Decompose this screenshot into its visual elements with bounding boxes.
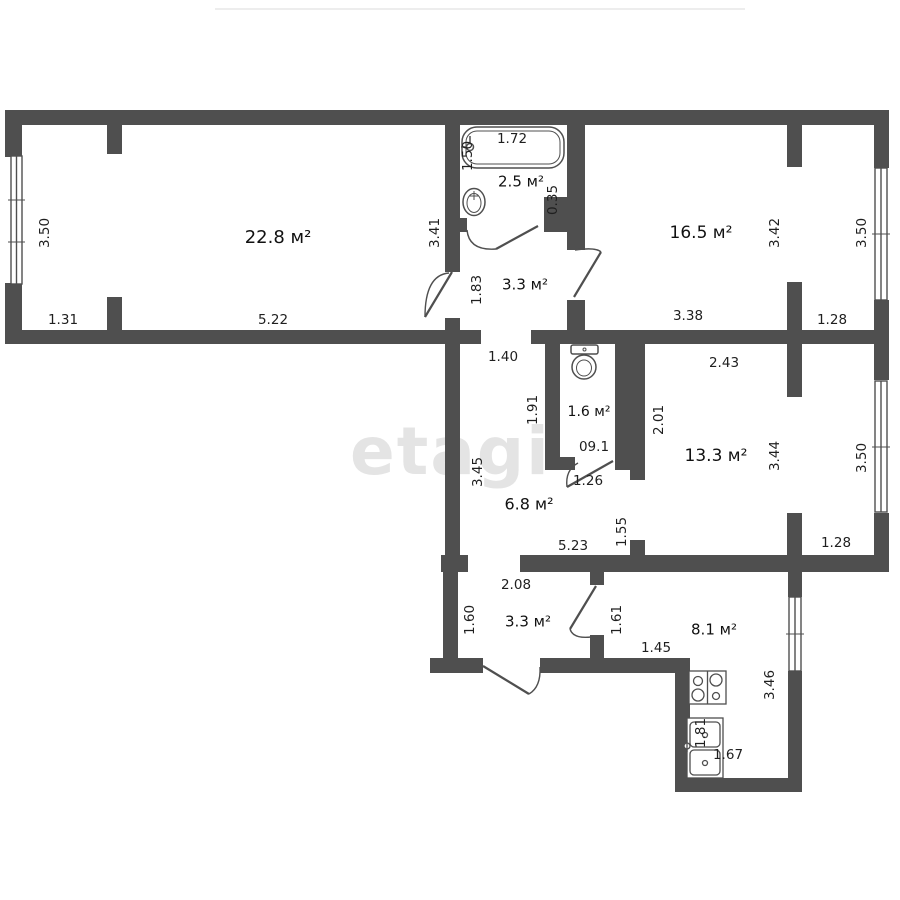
dimension-label: 1.81	[693, 718, 709, 748]
scan-artifact-line	[215, 8, 745, 10]
dimension-label: 1.40	[488, 349, 518, 365]
stove-icon	[710, 674, 722, 686]
wall	[590, 572, 604, 585]
dimension-label: 1.91	[525, 395, 541, 425]
floor-plan-page: etagi	[0, 0, 900, 900]
wall	[5, 330, 481, 344]
wall	[441, 555, 468, 572]
wall	[590, 635, 604, 658]
dimension-label: 3.38	[673, 308, 703, 324]
wall	[630, 470, 645, 480]
dimension-label: 1.45	[641, 640, 671, 656]
dimension-label: 3.41	[427, 218, 443, 248]
toilet-icon	[577, 360, 592, 376]
kitchen-sink-icon	[703, 761, 708, 766]
wall	[874, 300, 889, 380]
dimension-label: 09.1	[579, 439, 609, 455]
dimension-label: 2.08	[501, 577, 531, 593]
room-area-label-hall-upper: 3.3 м²	[502, 276, 548, 294]
dimension-label: 5.22	[258, 312, 288, 328]
dimension-label: 1.31	[48, 312, 78, 328]
wall	[5, 110, 889, 125]
dimension-label: 1.67	[713, 747, 743, 763]
toilet-icon	[583, 348, 586, 351]
wall	[445, 218, 467, 232]
floor-plan: etagi	[0, 0, 900, 900]
room-area-label-entry-room: 3.3 м²	[505, 613, 551, 631]
wall	[430, 658, 483, 673]
room-area-label-room-16-5: 16.5 м²	[670, 223, 733, 243]
dimension-label: 1.72	[497, 131, 527, 147]
stove-icon	[694, 677, 703, 686]
wall	[787, 282, 802, 333]
room-area-label-bathroom: 2.5 м²	[498, 173, 544, 191]
room-area-label-kitchen: 8.1 м²	[691, 621, 737, 639]
stove-icon	[713, 693, 720, 700]
window-icon-balcony-top	[872, 168, 890, 300]
wash-basin-icon	[463, 189, 485, 216]
room-area-label-hall-lower: 6.8 м²	[504, 495, 553, 514]
dimension-label: 3.42	[767, 218, 783, 248]
dimension-label: 3.46	[762, 670, 778, 700]
stove-icon	[689, 671, 726, 704]
wall	[545, 457, 575, 470]
wall	[567, 125, 585, 250]
room-area-label-wc: 1.6 м²	[568, 404, 611, 420]
dimension-label: 3.50	[854, 218, 870, 248]
wall	[567, 300, 585, 333]
wall	[445, 125, 460, 272]
wall	[545, 344, 560, 470]
dimension-label: 0.35	[545, 185, 561, 215]
dimension-label: 1.50	[460, 141, 476, 171]
room-area-label-room-22-8: 22.8 м²	[245, 227, 312, 248]
window-icon-kitchen	[786, 597, 804, 671]
wall	[107, 125, 122, 154]
wall	[520, 555, 889, 572]
wall	[788, 572, 802, 597]
dimension-label: 1.61	[609, 605, 625, 635]
toilet-icon	[571, 345, 598, 379]
window-icon-balcony-right	[872, 381, 890, 512]
wall	[445, 318, 460, 330]
wall	[540, 658, 690, 673]
room-area-label-room-13-3: 13.3 м²	[685, 446, 748, 466]
wall	[445, 344, 460, 556]
dimension-label: 2.43	[709, 355, 739, 371]
wall	[787, 513, 802, 558]
dimension-label: 1.55	[614, 517, 630, 547]
dimension-label: 3.45	[470, 457, 486, 487]
dimension-label: 5.23	[558, 538, 588, 554]
dimension-label: 3.44	[767, 441, 783, 471]
wall	[5, 110, 22, 157]
wall	[787, 125, 802, 167]
dimension-label: 1.26	[573, 473, 603, 489]
stove-icon	[692, 689, 704, 701]
dimension-label: 1.28	[821, 535, 851, 551]
wall	[787, 344, 802, 397]
wall	[874, 110, 889, 168]
dimension-label: 2.01	[651, 405, 667, 435]
dimension-label: 1.28	[817, 312, 847, 328]
dimension-label: 3.50	[37, 218, 53, 248]
wall	[788, 671, 802, 792]
wall	[107, 297, 122, 330]
dimension-label: 3.50	[854, 443, 870, 473]
wall	[675, 778, 802, 792]
wall	[615, 344, 645, 470]
dimension-label: 1.83	[469, 275, 485, 305]
dimension-label: 1.60	[462, 605, 478, 635]
window-icon-left	[8, 156, 25, 284]
